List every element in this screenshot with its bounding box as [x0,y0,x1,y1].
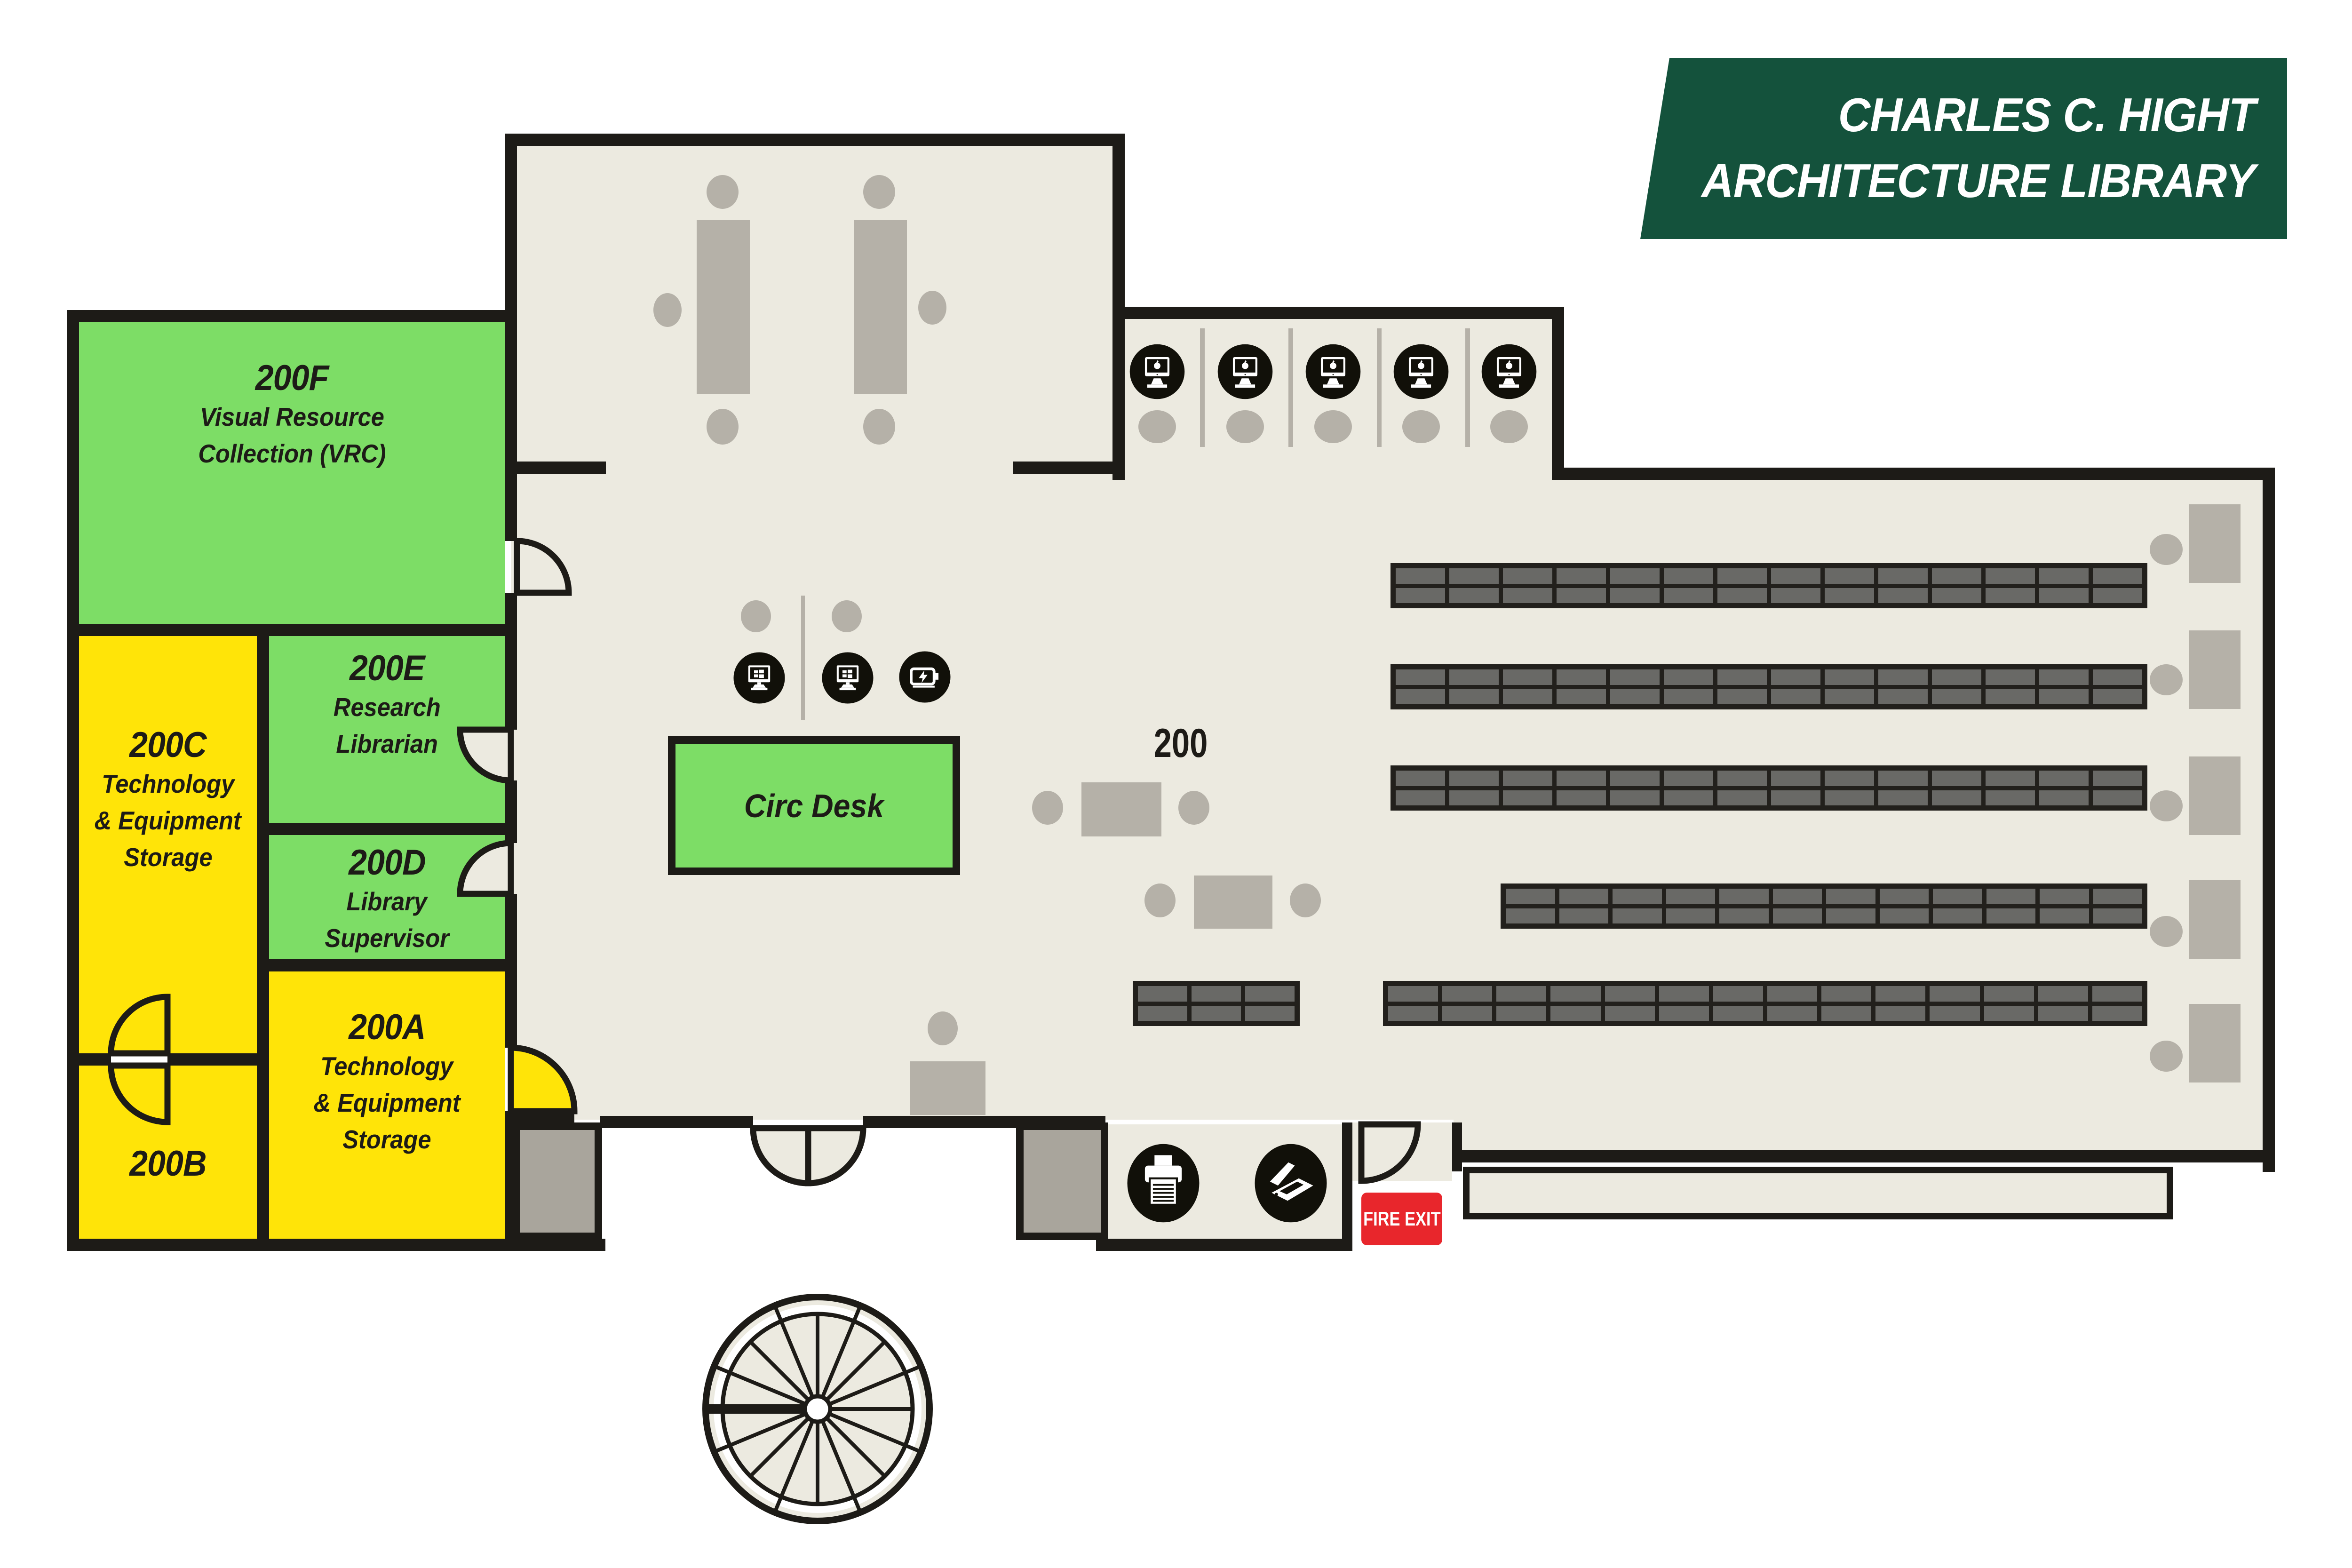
area-200-label: 200 [1139,722,1222,764]
apple-computer-icon [1306,344,1361,399]
door-200F [517,541,569,593]
door-200C [111,997,167,1053]
windows-computer-icon [822,652,873,703]
library-floor-plan: CHARLES C. HIGHT ARCHITECTURE LIBRARY Ci… [0,0,2352,1568]
fire-exit-sign: FIRE EXIT [1361,1193,1442,1245]
apple-computer-icon [1130,344,1185,399]
room-200C-label: 200C Technology & Equipment Storage [79,724,257,876]
battery-charging-icon [899,651,950,702]
windows-computer-icon [733,652,785,703]
fire-exit-label: FIRE EXIT [1363,1208,1441,1230]
printer-icon [1128,1144,1200,1223]
room-200F-label: 200F Visual Resource Collection (VRC) [79,358,505,472]
apple-computer-icon [1482,344,1537,399]
apple-computer-stations [1130,344,1537,399]
spiral-staircase [706,1297,930,1521]
scanner-icon [1255,1144,1327,1223]
apple-computer-icon [1394,344,1449,399]
door-200A [511,1048,574,1111]
apple-computer-icon [1218,344,1273,399]
fire-exit-door [1361,1124,1418,1181]
door-200B [111,1066,167,1122]
room-200E-label: 200E Research Librarian [269,648,505,762]
room-200A-label: 200A Technology & Equipment Storage [269,1007,505,1158]
room-200D-label: 200D Library Supervisor [269,842,505,956]
title-banner: CHARLES C. HIGHT ARCHITECTURE LIBRARY [1640,58,2287,239]
entrance-door-left [753,1128,808,1183]
room-200B-label: 200B [79,1143,257,1184]
library-name-line2: ARCHITECTURE LIBRARY [1701,149,2255,214]
library-name-line1: CHARLES C. HIGHT [1838,83,2255,148]
circ-desk-stations [733,651,950,703]
entrance-door-right [808,1128,863,1183]
